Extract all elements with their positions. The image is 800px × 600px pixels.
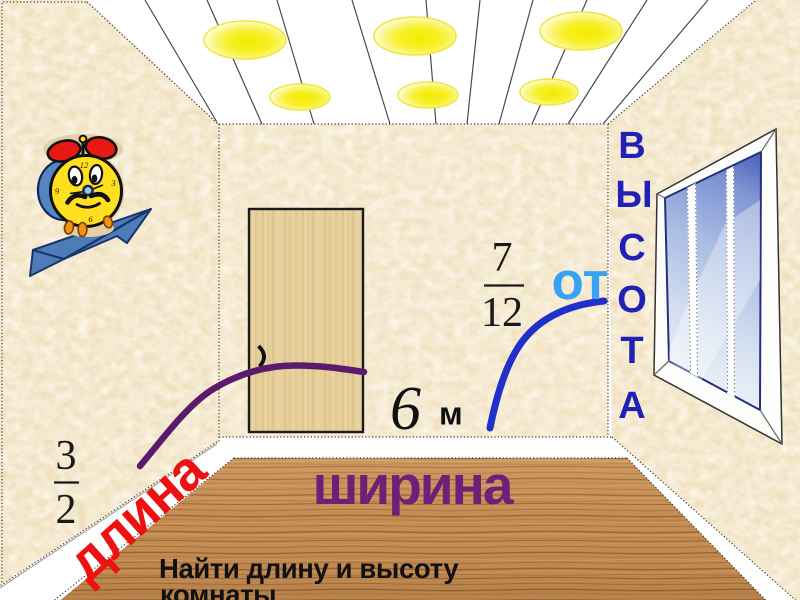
svg-text:м: м xyxy=(439,396,463,432)
svg-text:С: С xyxy=(618,227,645,269)
svg-text:12: 12 xyxy=(481,290,523,336)
svg-text:А: А xyxy=(618,385,645,427)
svg-text:О: О xyxy=(617,279,647,321)
svg-text:3: 3 xyxy=(110,178,115,188)
svg-text:2: 2 xyxy=(56,487,77,533)
svg-text:6: 6 xyxy=(390,375,421,443)
svg-text:комнаты: комнаты xyxy=(160,579,276,600)
svg-text:ширина: ширина xyxy=(313,454,514,516)
svg-text:Ы: Ы xyxy=(615,174,652,216)
svg-text:Т: Т xyxy=(620,330,643,372)
svg-text:7: 7 xyxy=(492,235,513,281)
svg-text:3: 3 xyxy=(56,433,77,479)
svg-text:В: В xyxy=(618,125,645,167)
svg-text:от: от xyxy=(551,252,608,311)
svg-text:12: 12 xyxy=(80,160,89,170)
